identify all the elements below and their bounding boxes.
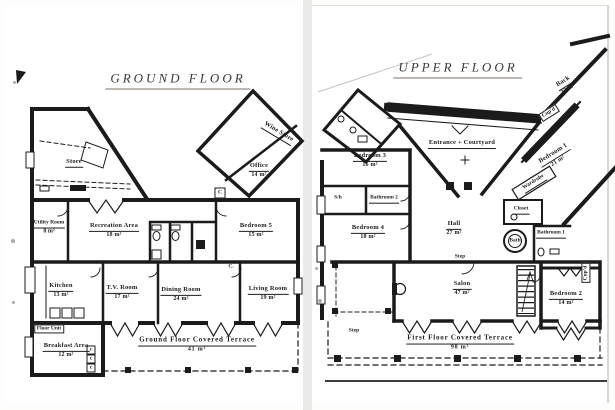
room-name: Office: [249, 162, 269, 172]
scan-speck: [13, 81, 16, 84]
room-label-breakfast-area: Breakfast Area 12 m²: [43, 342, 90, 360]
room-label-closet: Closet: [513, 206, 530, 215]
room-label-bedroom-3: Bedroom 3 16 m²: [353, 152, 387, 170]
room-name: Entrance + Courtyard: [428, 139, 496, 149]
room-label-ground-terrace: Ground Floor Covered Terrace 41 m²: [138, 336, 256, 355]
room-name: Bathroom 1: [536, 230, 566, 239]
annotation-floor-unit: Floor Unit: [34, 324, 64, 333]
room-label-bedroom-4: Bedroom 4 18 m²: [351, 224, 385, 242]
room-label-entrance-courtyard: Entrance + Courtyard: [428, 139, 496, 149]
room-area: 98 m²: [451, 345, 469, 353]
scan-speck: [318, 299, 322, 303]
room-name: Bedroom 2: [549, 290, 583, 300]
room-label-store: Store: [65, 158, 83, 168]
room-name: Salon: [453, 280, 472, 290]
room-name: Closet: [513, 206, 530, 215]
room-label-utility-room: Utility Room 8 m²: [33, 220, 65, 237]
room-name: T.V. Room: [106, 284, 139, 294]
room-name: Bedroom 3: [353, 152, 387, 162]
annotation-c2: c: [90, 355, 92, 362]
scan-speck: [11, 239, 15, 243]
room-name: Bathroom 2: [369, 195, 399, 204]
room-name: Store: [65, 158, 83, 168]
annotation-step-terrace: Step: [349, 327, 359, 334]
room-name: Dining Room: [160, 286, 201, 296]
room-label-bedroom-5: Bedroom 5 15 m²: [239, 222, 273, 240]
room-name: Living Room: [248, 285, 289, 295]
room-area: 12 m²: [58, 352, 73, 360]
annotation-cupboard-office: C: [218, 189, 222, 196]
ground-floor-title: GROUND FLOOR: [105, 71, 250, 90]
room-name: Breakfast Area: [43, 342, 90, 352]
room-name: Hall: [447, 220, 462, 230]
annotation-c3: c: [90, 364, 92, 371]
room-area: 8 m²: [43, 229, 54, 237]
room-name: First Floor Covered Terrace: [406, 334, 514, 345]
room-area: 17 m²: [114, 294, 129, 302]
room-label-dining-room: Dining Room 24 m²: [160, 286, 201, 304]
room-name: Bedroom 4: [351, 224, 385, 234]
room-label-living-room: Living Room 19 m²: [248, 285, 289, 303]
room-name: Ground Floor Covered Terrace: [138, 336, 256, 347]
room-area: 18 m²: [360, 234, 375, 242]
room-area: 47 m²: [454, 290, 469, 298]
room-name: Utility Room: [33, 220, 65, 229]
scan-speck: [12, 301, 15, 304]
room-label-salon: Salon 47 m²: [453, 280, 472, 298]
room-area: 15 m²: [248, 232, 263, 240]
room-name: Recreation Area: [89, 222, 139, 232]
annotation-c1: c: [90, 346, 92, 353]
room-area: 24 m²: [173, 296, 188, 304]
room-area: 13 m²: [53, 292, 68, 300]
annotation-step-hall: Step: [455, 253, 465, 260]
room-label-bedroom-2: Bedroom 2 14 m²: [549, 290, 583, 308]
room-area: 18 m²: [106, 232, 121, 240]
room-label-hall: Hall 27 m²: [446, 220, 461, 238]
room-label-bathroom-2: Bathroom 2: [369, 195, 399, 204]
scan-speck: [315, 267, 318, 270]
annotation-shower: S/h: [334, 194, 342, 201]
room-label-tv-room: T.V. Room 17 m²: [106, 284, 139, 302]
room-area: 27 m²: [446, 230, 461, 238]
upper-floor-title: UPPER FLOOR: [393, 60, 522, 79]
room-area: 14 m²: [251, 172, 266, 180]
room-name: Bedroom 5: [239, 222, 273, 232]
room-name: Bath: [509, 237, 520, 244]
room-label-office: Office 14 m²: [249, 162, 269, 180]
room-area: 16 m²: [362, 162, 377, 170]
room-label-recreation-area: Recreation Area 18 m²: [89, 222, 139, 240]
annotation-cupboard-bedroom2: Cup'd: [581, 263, 590, 283]
room-label-bath: Bath: [509, 237, 520, 244]
room-label-first-floor-terrace: First Floor Covered Terrace 98 m²: [406, 334, 514, 353]
room-label-kitchen: Kitchen 13 m²: [48, 282, 73, 300]
room-area: 14 m²: [558, 300, 573, 308]
room-name: Kitchen: [48, 282, 73, 292]
room-area: 19 m²: [260, 295, 275, 303]
room-label-bathroom-1: Bathroom 1: [536, 230, 566, 239]
scanned-floor-plans: GROUND FLOOR Store Wine Store Office 14 …: [0, 0, 615, 410]
room-area: 41 m²: [188, 347, 206, 355]
annotation-cupboard-dining: C.: [228, 263, 233, 270]
